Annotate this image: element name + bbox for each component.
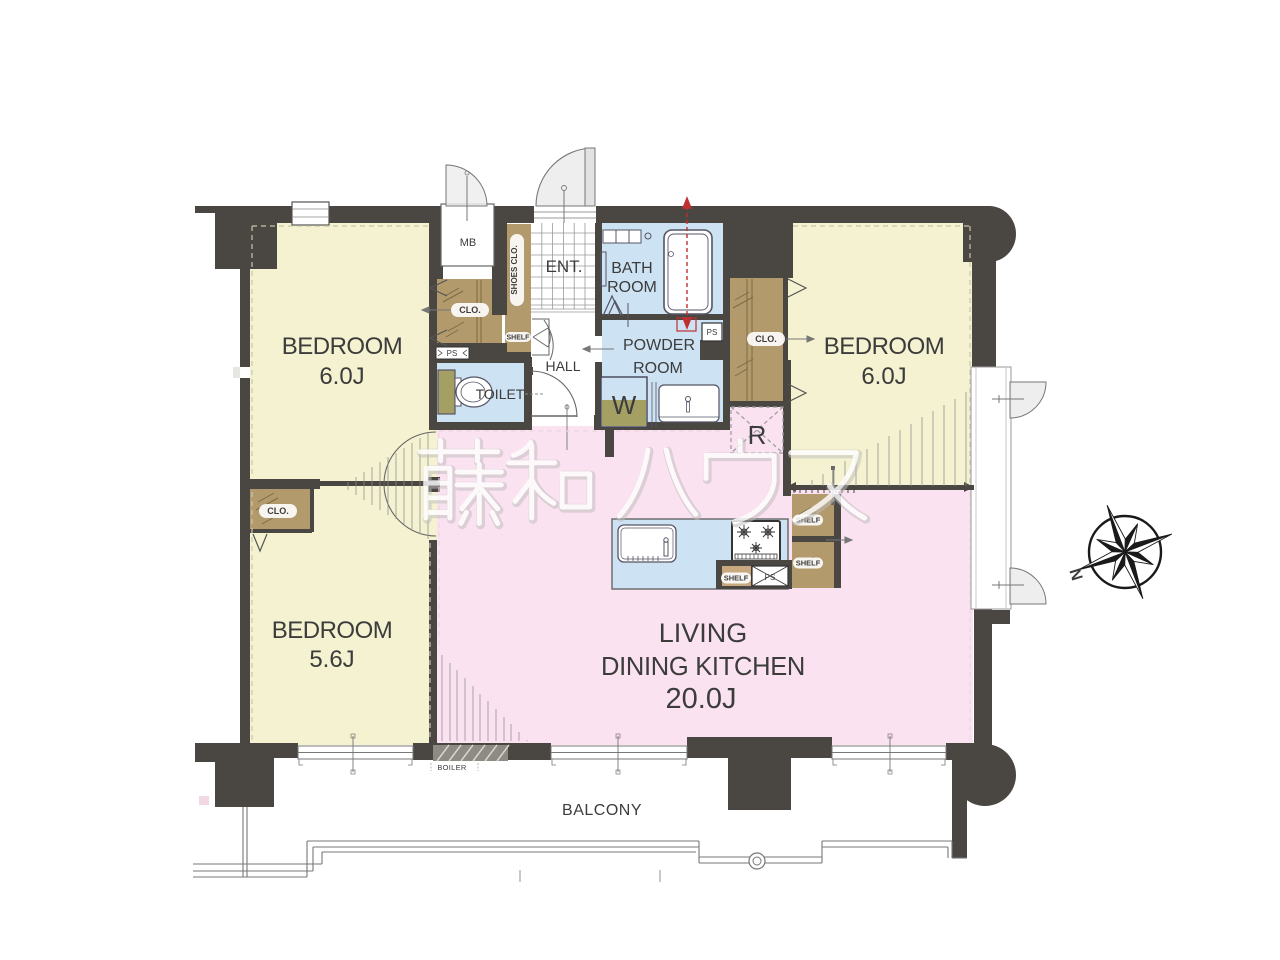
svg-text:PS: PS xyxy=(707,328,718,337)
svg-text:ROOM: ROOM xyxy=(633,360,683,377)
svg-text:BEDROOM: BEDROOM xyxy=(824,333,945,360)
svg-text:MB: MB xyxy=(460,237,477,249)
svg-text:BOILER: BOILER xyxy=(437,763,467,772)
svg-text:6.0J: 6.0J xyxy=(319,363,364,390)
svg-text:HALL: HALL xyxy=(545,358,580,374)
svg-text:R: R xyxy=(748,420,767,450)
svg-text:ENT.: ENT. xyxy=(546,257,583,276)
svg-text:ROOM: ROOM xyxy=(607,279,657,296)
svg-text:SHOES CLO.: SHOES CLO. xyxy=(510,245,519,294)
svg-text:SHELF: SHELF xyxy=(724,574,749,583)
svg-text:LIVING: LIVING xyxy=(659,618,748,648)
svg-text:20.0J: 20.0J xyxy=(666,683,737,715)
svg-text:SHELF: SHELF xyxy=(507,335,531,342)
svg-text:TOILET: TOILET xyxy=(476,386,525,402)
svg-text:BEDROOM: BEDROOM xyxy=(282,333,403,360)
svg-text:PS: PS xyxy=(765,573,776,582)
svg-text:CLO.: CLO. xyxy=(459,305,481,315)
svg-text:PS: PS xyxy=(447,349,458,358)
svg-text:CLO.: CLO. xyxy=(267,506,289,516)
svg-text:BEDROOM: BEDROOM xyxy=(272,617,393,644)
svg-text:CLO.: CLO. xyxy=(755,334,777,344)
svg-text:BALCONY: BALCONY xyxy=(562,802,642,819)
svg-text:POWDER: POWDER xyxy=(623,337,695,354)
svg-text:6.0J: 6.0J xyxy=(861,363,906,390)
svg-text:SHELF: SHELF xyxy=(796,559,821,568)
svg-text:BATH: BATH xyxy=(611,260,652,277)
svg-text:DINING KITCHEN: DINING KITCHEN xyxy=(601,653,805,681)
svg-text:W: W xyxy=(612,390,637,420)
svg-text:5.6J: 5.6J xyxy=(309,646,354,673)
